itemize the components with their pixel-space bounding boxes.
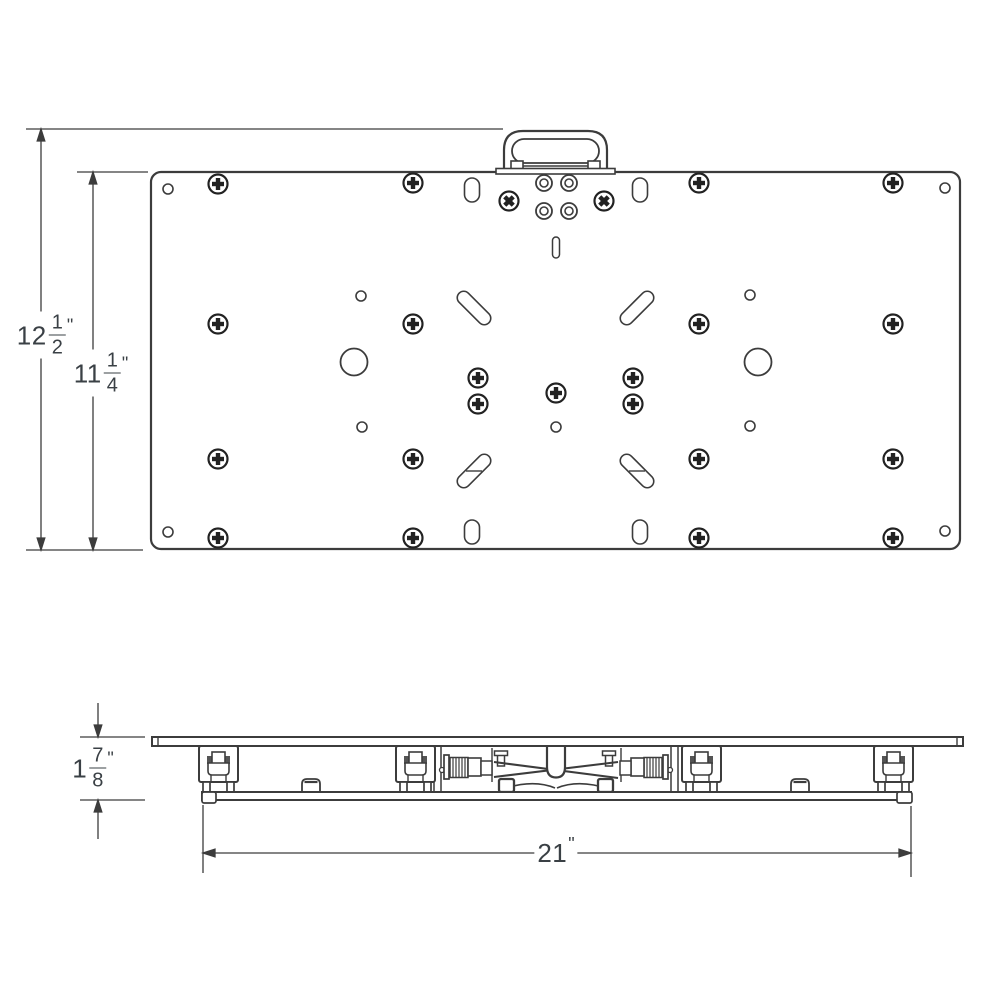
side-bottom-rail <box>202 792 911 800</box>
handle-base <box>496 169 615 175</box>
dim-fraction: 1 2 <box>49 313 66 358</box>
dim-whole: 1 <box>72 755 87 781</box>
latch-post <box>547 746 565 778</box>
center-pin-slot <box>553 237 560 258</box>
dim-whole: 11 <box>74 360 102 386</box>
spring-right <box>644 758 662 778</box>
drawing-svg <box>0 0 1000 1000</box>
dim-label-plate-height: 11 1 4 " <box>71 350 132 397</box>
side-view <box>152 737 963 803</box>
inch-mark: " <box>568 834 574 855</box>
latch-mechanism <box>434 746 678 792</box>
dim-fraction: 7 8 <box>89 746 106 791</box>
inch-mark: " <box>67 316 73 337</box>
inch-mark: " <box>122 354 128 375</box>
dim-label-width: 21 " <box>534 839 577 867</box>
dim-label-thickness: 1 7 8 " <box>69 745 116 792</box>
side-top-plate <box>152 737 963 746</box>
dim-label-overall-height: 12 1 2 " <box>14 312 76 359</box>
dim-whole: 12 <box>17 322 47 348</box>
spring-flange-left <box>444 755 449 779</box>
inch-mark: " <box>107 749 113 770</box>
mounting-plate-outline <box>151 172 960 549</box>
top-view <box>151 131 960 549</box>
handle <box>504 131 607 172</box>
dim-whole: 21 <box>537 840 567 866</box>
dim-fraction: 1 4 <box>104 351 121 396</box>
technical-drawing-canvas: 12 1 2 " 11 1 4 " 1 7 8 " 21 " <box>0 0 1000 1000</box>
spring-flange-right <box>663 755 668 779</box>
spring-left <box>450 758 468 778</box>
